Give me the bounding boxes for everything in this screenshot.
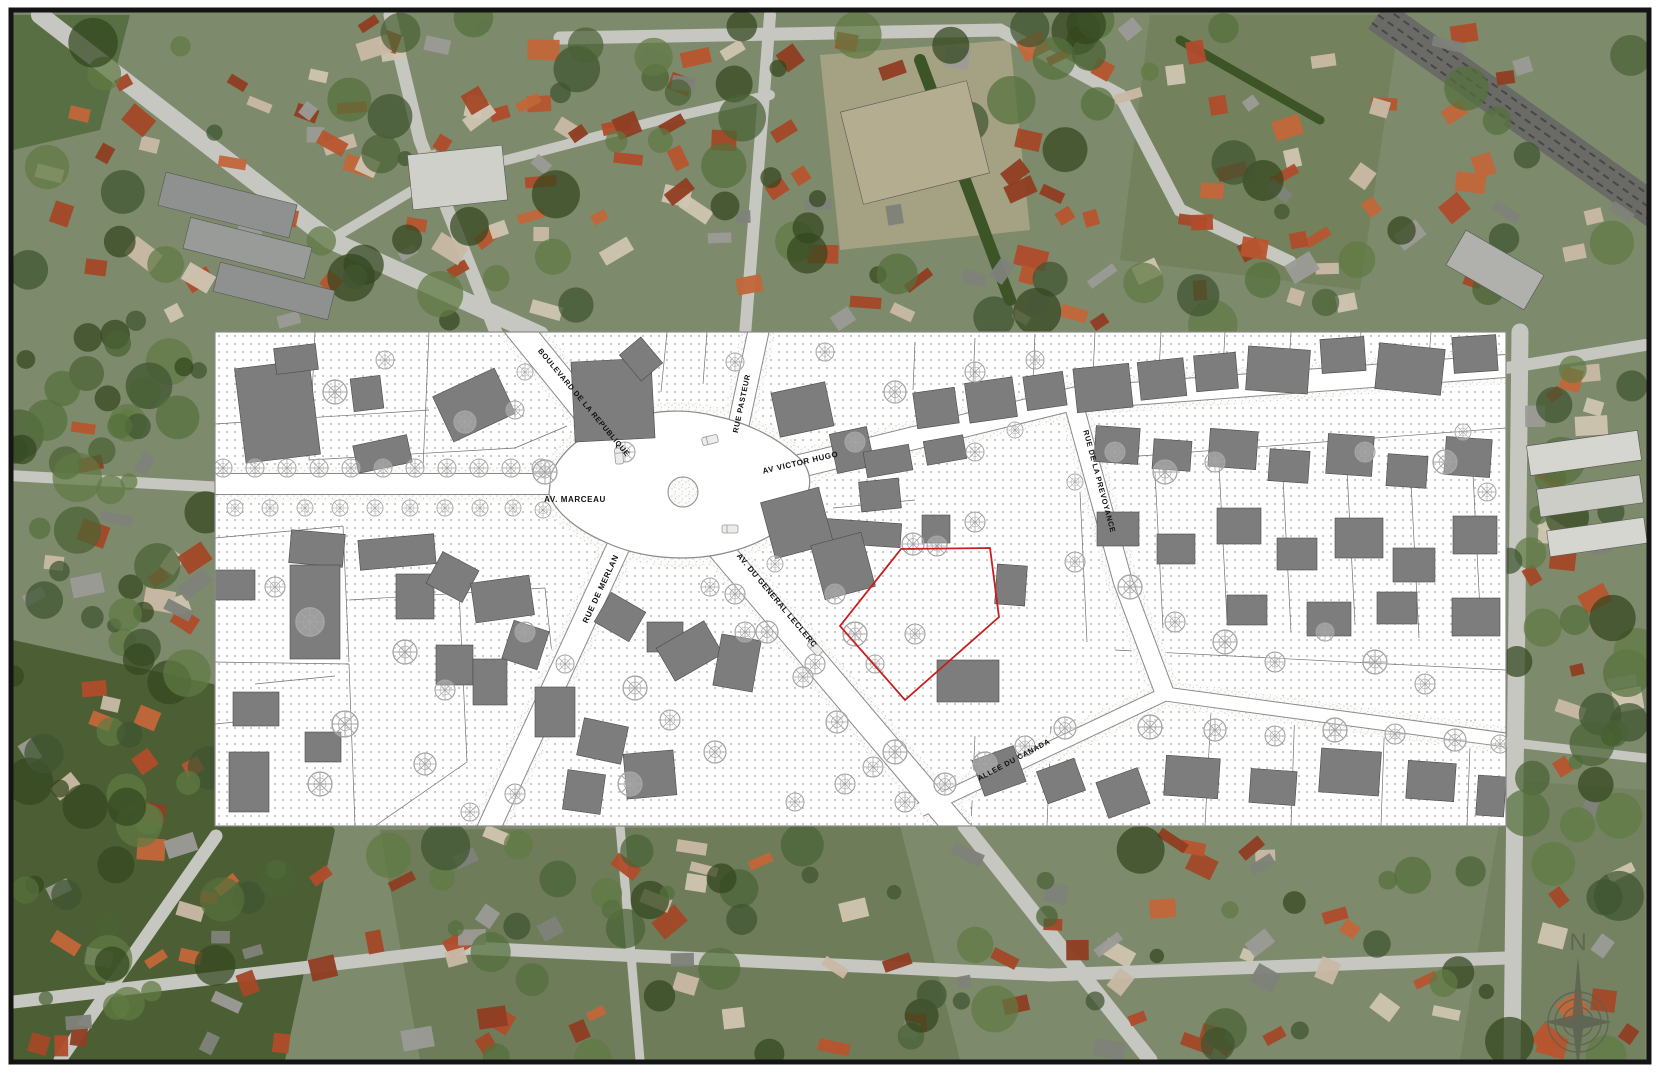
photo-tree [1586,879,1622,915]
photo-house-roof [850,296,882,310]
photo-tree [483,1043,510,1070]
photo-tree [631,881,669,919]
plan-building [937,660,999,702]
photo-tree [917,980,947,1010]
photo-tree [101,170,145,214]
photo-tree [53,453,102,502]
photo-tree [258,860,297,899]
photo-tree [1312,289,1339,316]
plan-tree [505,784,525,804]
photo-tree [1560,605,1590,635]
plan-tree [618,772,642,796]
photo-tree [760,167,781,188]
plan-tree [965,362,985,382]
plan-tree [902,533,924,555]
photo-tree [1560,807,1595,842]
photo-house-roof [685,873,708,893]
photo-tree [51,880,81,910]
photo-house-roof [1149,898,1176,918]
plan-building [1227,595,1267,625]
plan-tree [342,459,360,477]
plan-tree [556,655,574,673]
plan-tree [1165,612,1185,632]
photo-tree [1483,106,1512,135]
photo-tree [448,920,464,936]
photo-tree [1378,871,1397,890]
photo-tree [126,311,146,331]
photo-tree [1283,891,1306,914]
photo-tree [12,876,39,903]
plan-building [1137,358,1187,401]
photo-tree [971,985,1018,1032]
photo-tree [620,834,653,867]
photo-tree [1036,906,1058,928]
plan-tree [310,459,328,477]
photo-tree [156,395,200,439]
plan-building [229,752,269,812]
photo-tree [1586,1035,1627,1076]
photo-tree [550,82,571,103]
photo-tree [95,947,130,982]
photo-house-roof [477,1005,508,1029]
photo-tree [1010,8,1049,47]
plan-tree [1007,422,1023,438]
photo-tree [392,224,422,254]
plan-tree [1118,575,1142,599]
plan-building [350,375,384,411]
plan-tree [793,667,813,687]
plan-tree [1265,726,1285,746]
photo-tree [200,877,244,921]
photo-tree [1363,930,1391,958]
photo-house-roof [1240,236,1269,260]
photo-tree [123,643,155,675]
plan-tree [332,500,348,516]
photo-tree [877,254,918,295]
photo-house-roof [1575,415,1608,436]
plan-tree [472,500,488,516]
roundabout-island [668,477,698,507]
plan-building [1023,371,1067,410]
photo-tree [1444,66,1488,110]
photo-tree [103,993,130,1020]
plan-tree [515,622,535,642]
photo-tree [957,927,993,963]
plan-tree [701,578,719,596]
photo-tree [176,771,200,795]
plan-tree [506,401,524,419]
photo-house-roof [1066,940,1089,961]
photo-tree [1514,142,1541,169]
plan-tree [435,680,455,700]
photo-tree [174,357,193,376]
plan-tree [725,584,745,604]
photo-tree [1013,288,1061,336]
plan-building [471,575,535,623]
plan-tree [214,459,232,477]
plan-tree [308,772,332,796]
photo-tree [568,27,604,63]
plan-tree [296,608,324,636]
plan-tree [1415,674,1435,694]
plan-tree [1065,552,1085,572]
photo-tree [539,861,576,898]
photo-tree [1502,789,1549,836]
plan-tree [1323,718,1347,742]
plan-building [1375,343,1445,396]
plan-tree [1067,474,1083,490]
plan-building [1194,352,1239,392]
plan-building [1217,508,1261,544]
plan-building [1386,454,1428,489]
compass-north-letter: N [1569,929,1586,956]
plan-tree [786,793,804,811]
photo-tree [605,130,627,152]
plan-building [1320,337,1366,374]
plan-tree [965,512,985,532]
photo-tree [104,330,131,357]
photo-tree [25,581,63,619]
photo-tree [97,846,134,883]
plan-tree [1385,724,1405,744]
photo-tree [834,11,882,59]
plan-tree [265,577,285,597]
plan-tree [905,624,925,644]
photo-tree [516,963,549,996]
photo-tree [366,833,411,878]
map-canvas: BOULEVARD DE LA REPUBLIQUEAV. MARCEAURUE… [0,0,1660,1080]
plan-tree [1138,715,1162,739]
plan-building [233,692,279,726]
photo-house-roof [65,1015,92,1031]
photo-tree [128,376,160,408]
plan-tree [517,364,533,380]
photo-house-roof [527,39,559,60]
plan-building [713,634,761,692]
plan-building [1164,755,1221,799]
photo-tree [16,350,35,369]
plan-tree [1205,452,1225,472]
photo-house-roof [736,210,750,223]
photo-tree [503,913,530,940]
photo-tree [1485,1017,1534,1066]
plan-building [1393,548,1435,582]
plan-tree [735,622,755,642]
photo-house-roof [885,204,904,226]
photo-tree [95,385,121,411]
photo-tree [24,734,63,773]
photo-tree [134,543,180,589]
plan-building [1476,775,1507,817]
photo-tree [1387,216,1415,244]
photo-tree [802,867,819,884]
photo-tree [471,932,511,972]
photo-house-roof [1496,70,1516,85]
plan-tree [1316,623,1334,641]
plan-tree [1026,351,1044,369]
photo-tree [1590,221,1634,265]
photo-house-roof [708,232,732,243]
photo-tree [1141,63,1159,81]
photo-tree [81,606,104,629]
plan-building [913,387,960,428]
plan-building [1335,518,1383,558]
plan-building [1377,592,1417,624]
plan-building [1097,512,1139,546]
photo-house-roof [211,931,230,944]
photo-tree [1589,595,1635,641]
photo-tree [1479,984,1494,999]
plan-building [1246,346,1311,394]
plan-building [1406,760,1457,801]
photo-tree [1117,826,1165,874]
photo-tree [535,239,571,275]
plan-tree [816,343,834,361]
photo-tree [163,649,211,697]
plan-building [305,732,341,762]
plan-building [289,530,346,568]
plan-building [1157,534,1195,564]
photo-road [1512,332,1520,1060]
photo-tree [1201,1027,1235,1061]
plan-car [722,525,738,533]
plan-tree [227,500,243,516]
plan-tree [470,459,488,477]
photo-tree [1430,969,1458,997]
photo-tree [74,323,103,352]
plan-tree [367,500,383,516]
plan-tree [927,536,947,556]
photo-tree [726,904,757,935]
plan-building [562,770,605,815]
photo-tree [718,94,766,142]
photo-tree [1081,87,1114,120]
photo-tree [770,60,787,77]
photo-tree [63,784,108,829]
photo-tree [1211,140,1255,184]
photo-tree [417,271,463,317]
plan-tree [1213,630,1237,654]
photo-tree [644,980,675,1011]
photo-tree [1291,1021,1309,1039]
plan-tree [1478,483,1496,501]
plan-building [859,478,902,512]
plan-tree [454,411,476,433]
photo-tree [1601,720,1628,747]
photo-tree [39,991,53,1005]
plan-tree [332,711,358,737]
plan-tree [726,353,744,371]
photo-tree [1524,609,1562,647]
photo-tree [1177,274,1219,316]
photo-tree [1221,901,1238,918]
plan-tree [1204,719,1226,741]
plan-tree [863,757,883,777]
plan-building [473,659,507,705]
photo-tree [368,94,413,139]
plan-tree [884,381,906,403]
plan-tree [1265,652,1285,672]
photo-house-roof [1191,214,1213,230]
photo-house-roof [722,1007,745,1030]
photo-house-roof [671,953,694,967]
photo-tree [206,124,222,140]
plan-building [535,687,575,737]
photo-tree [987,76,1035,124]
photo-tree [602,900,622,920]
photo-house-roof [1200,182,1224,199]
plan-tree [767,556,783,572]
plan-building [1453,516,1497,554]
photo-tree [1531,842,1575,886]
photo-tree [1037,872,1055,890]
photo-tree [343,264,368,289]
photo-tree [49,561,70,582]
photo-tree [108,788,146,826]
plan-tree [883,740,907,764]
plan-tree [845,432,865,452]
photo-tree [707,863,737,893]
photo-house-roof [54,1035,68,1056]
photo-house-roof [1289,231,1309,250]
photo-tree [327,78,371,122]
photo-house-roof [1590,988,1617,1013]
plan-tree [278,459,296,477]
plan-tree [414,753,436,775]
plan-building [234,360,320,463]
photo-tree [781,823,824,866]
plan-tree [966,443,984,461]
plan-building [1249,768,1297,805]
photo-tree [51,780,69,798]
photo-tree [147,246,184,283]
plan-tree [533,460,557,484]
photo-tree [665,79,691,105]
photo-tree [634,38,672,76]
plan-tree [835,774,855,794]
plan-building [964,377,1017,423]
plan-building [274,344,319,375]
plan-tree [1444,729,1466,751]
photo-tree [450,207,489,246]
plan-building [1277,538,1317,570]
plan-tree [660,710,680,730]
photo-tree [1456,856,1486,886]
photo-tree [421,821,470,870]
photo-tree [121,473,138,490]
plan-building [1319,748,1382,796]
photo-tree [558,287,593,322]
photo-tree [1043,127,1088,172]
photo-tree [1394,857,1431,894]
photo-tree [96,475,125,504]
plan-tree [393,640,417,664]
photo-tree [195,945,236,986]
photo-house-roof [957,975,973,989]
plan-building [1452,598,1500,636]
plan-building [436,645,473,685]
plan-tree [1363,650,1387,674]
photo-tree [1086,992,1105,1011]
plan-building [358,534,436,571]
photo-tree [787,233,828,274]
photo-tree [8,250,48,290]
plan-building [1073,363,1133,413]
photo-tree [504,830,533,859]
plan-building [1452,335,1498,374]
plan-tree [1355,442,1375,462]
photo-tree [953,992,970,1009]
photo-tree [660,886,675,901]
photo-tree [1123,263,1164,304]
plan-tree [374,459,392,477]
photo-tree [380,13,420,53]
plan-building [995,564,1028,606]
street-label-av-marceau: AV. MARCEAU [544,495,606,504]
photo-house-roof [1165,64,1186,86]
photo-tree [932,27,969,64]
photo-tree [887,885,902,900]
photo-tree [29,518,50,539]
plan-tree [756,621,778,643]
plan-tree [406,459,424,477]
plan-tree [297,500,313,516]
photo-tree [711,191,740,220]
photo-tree [141,981,162,1002]
plan-tree [402,500,418,516]
photo-tree [648,128,673,153]
photo-tree [117,722,143,748]
photo-tree [726,11,757,42]
plan-tree [437,500,453,516]
photo-tree [96,913,120,937]
photo-tree [68,18,118,68]
photo-tree [1610,35,1651,76]
photo-house-roof [533,227,549,241]
plan-building [215,570,255,600]
photo-tree [44,371,80,407]
photo-tree [1559,355,1587,383]
photo-house-roof [1208,95,1228,116]
site-plan-page: BOULEVARD DE LA REPUBLIQUEAV. MARCEAURUE… [0,0,1660,1080]
photo-tree [361,134,400,173]
plan-building [1268,449,1310,484]
plan-tree [376,351,394,369]
photo-tree [25,145,69,189]
photo-tree [1578,767,1614,803]
photo-tree [701,143,746,188]
plan-tree [1455,424,1471,440]
plan-tree [505,500,521,516]
plan-tree [1105,442,1125,462]
photo-tree [1150,949,1164,963]
photo-large-building [407,145,507,210]
photo-tree [574,1039,611,1076]
photo-tree [698,948,740,990]
plan-tree [825,584,845,604]
photo-tree [532,170,580,218]
plan-tree [262,500,278,516]
photo-house-roof [81,680,107,697]
plan-tree [704,741,726,763]
photo-tree [809,190,826,207]
site-plan-overlay: BOULEVARD DE LA REPUBLIQUEAV. MARCEAURUE… [214,324,1509,832]
plan-tree [1433,450,1457,474]
plan-tree [535,502,551,518]
photo-tree [104,226,136,258]
photo-tree [170,36,190,56]
photo-tree [1339,241,1376,278]
